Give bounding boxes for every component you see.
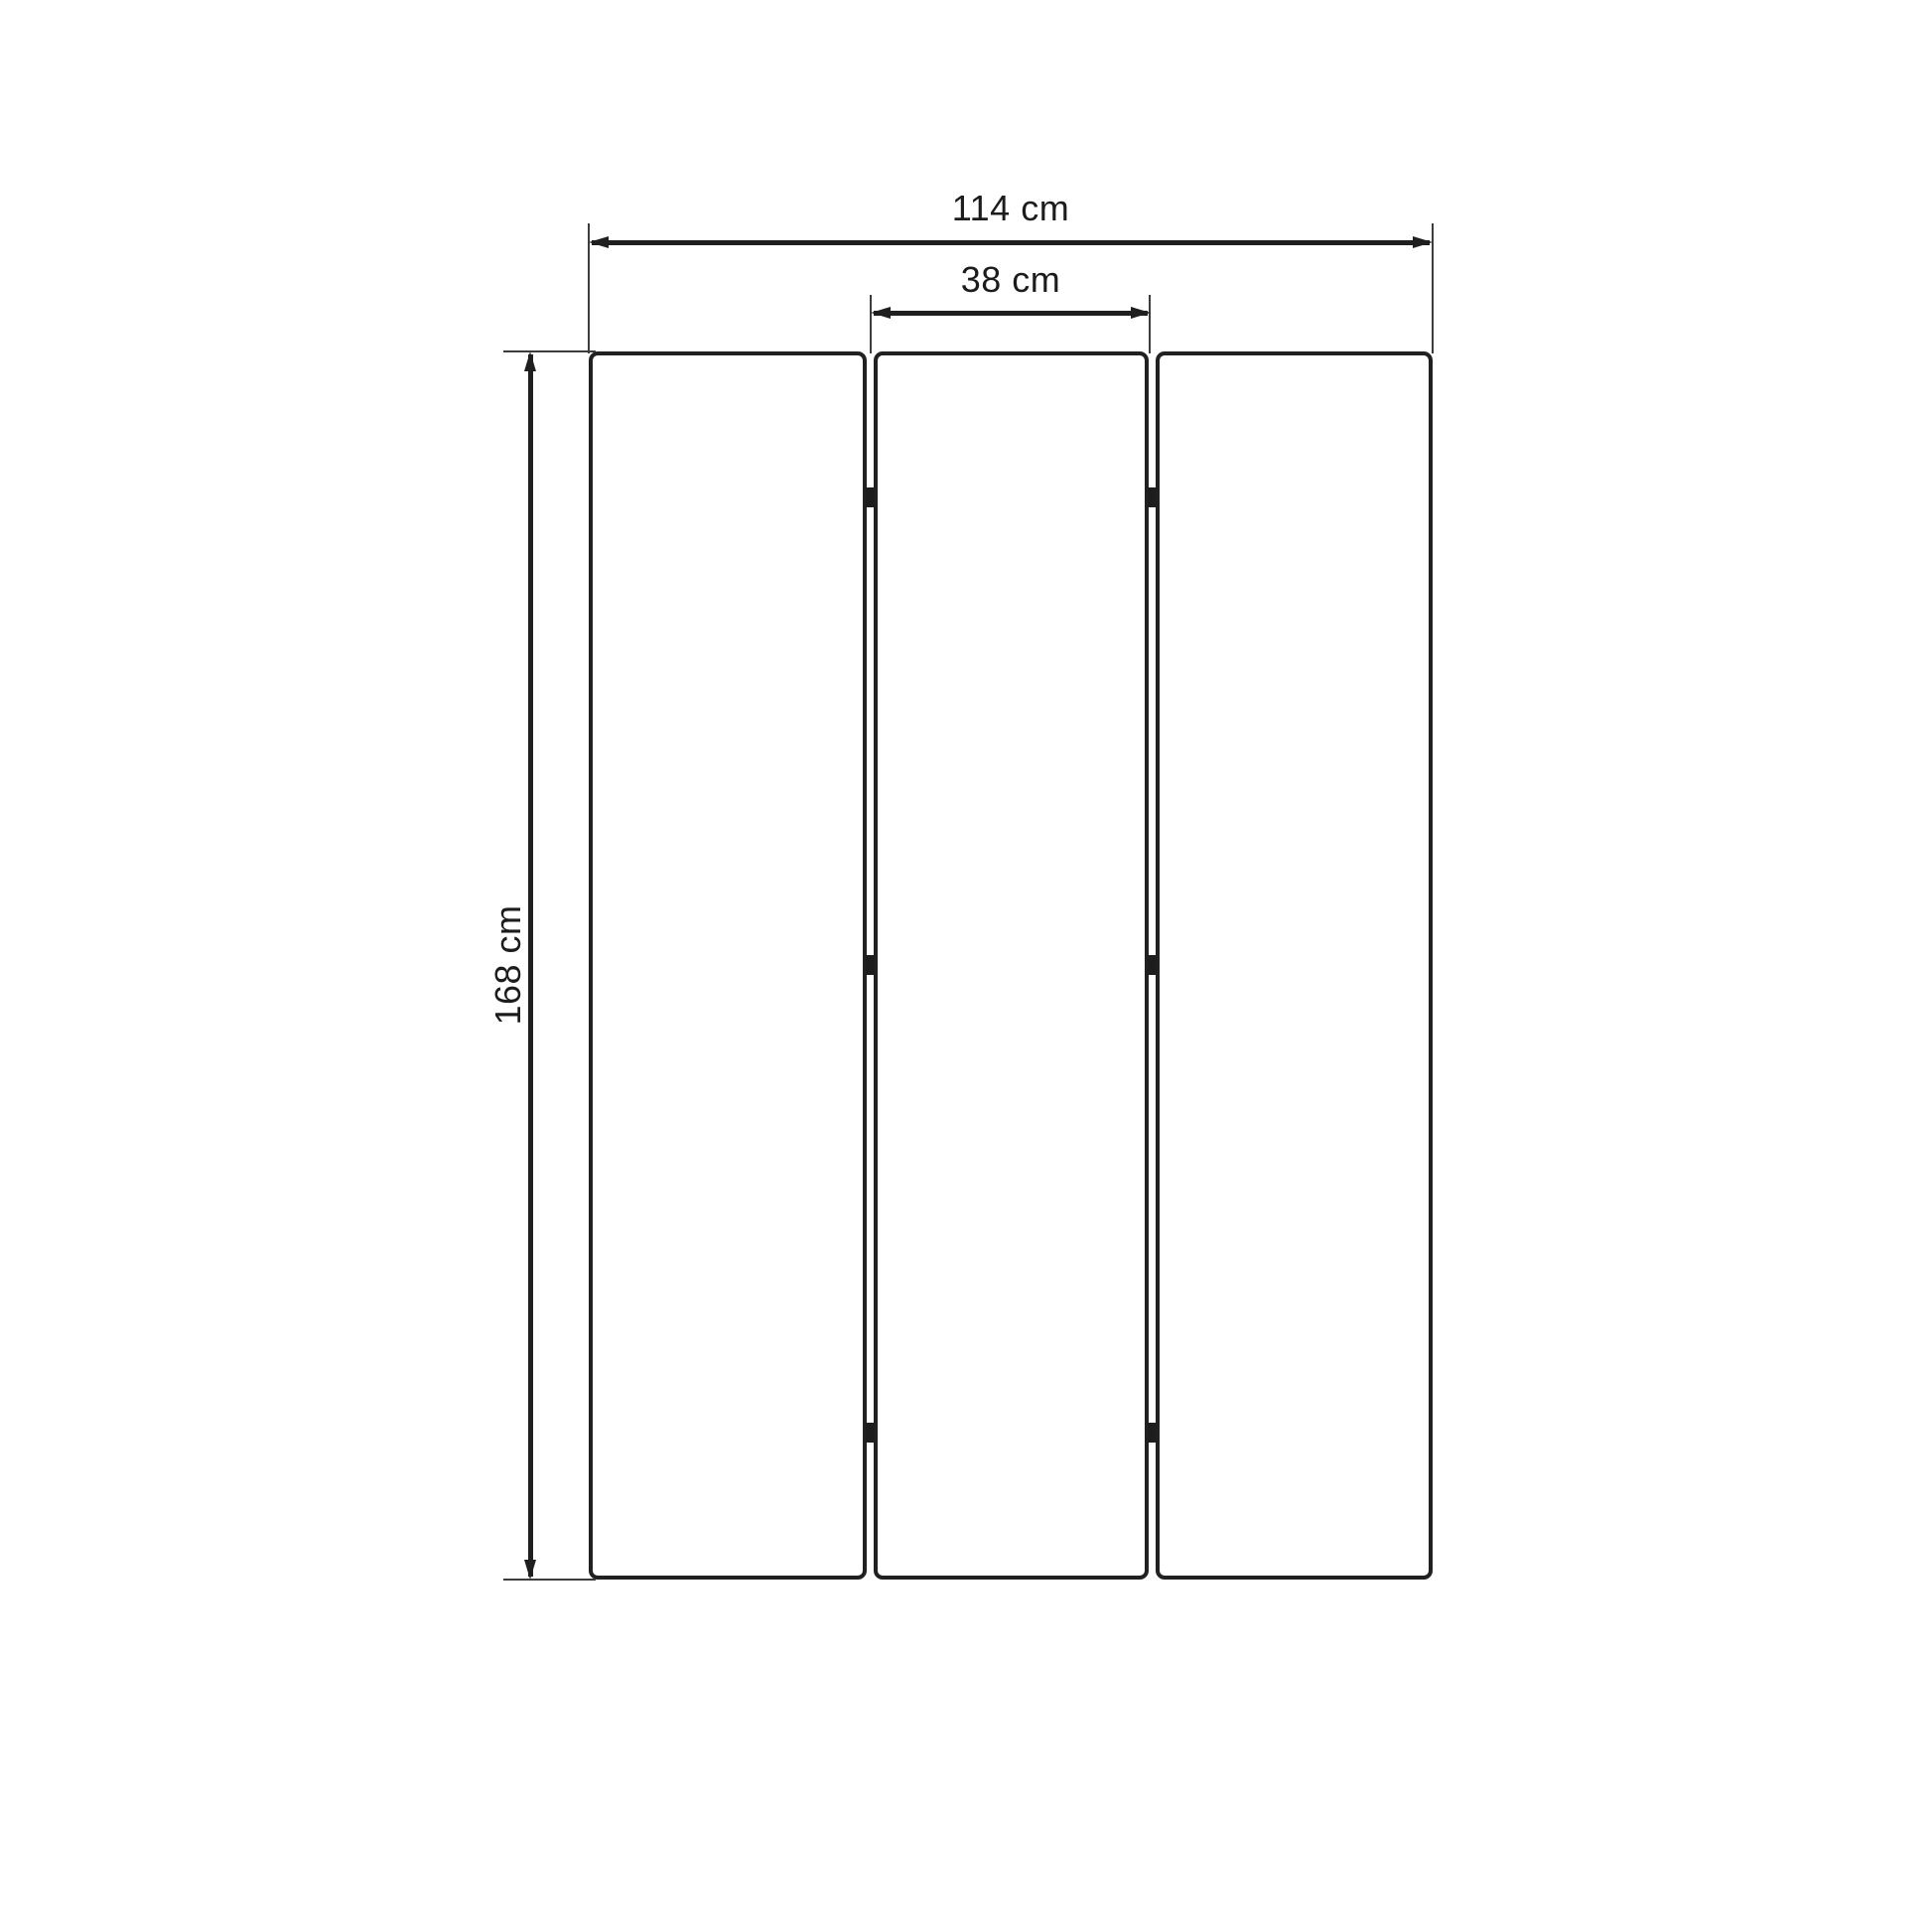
total-width-label: 114 cm bbox=[911, 191, 1110, 226]
extension-line-panel-width-right bbox=[1149, 295, 1151, 353]
hinge-icon bbox=[866, 955, 875, 975]
extension-line-panel-width-left bbox=[870, 295, 872, 353]
hinge-icon bbox=[866, 1423, 875, 1443]
height-label: 168 cm bbox=[490, 866, 526, 1064]
panel-right bbox=[1156, 351, 1433, 1580]
panel-left bbox=[589, 351, 867, 1580]
arrowhead-left-icon bbox=[589, 236, 609, 248]
panel-width-label: 38 cm bbox=[911, 262, 1110, 298]
height-dimension-line bbox=[528, 354, 533, 1577]
arrowhead-down-icon bbox=[524, 1560, 536, 1580]
hinge-icon bbox=[866, 487, 875, 507]
arrowhead-right-icon bbox=[1413, 236, 1433, 248]
extension-line-height-bottom bbox=[503, 1579, 596, 1581]
dimension-diagram: 114 cm 38 cm 168 cm bbox=[0, 0, 1932, 1932]
hinge-icon bbox=[1148, 487, 1157, 507]
arrowhead-left-icon bbox=[871, 307, 891, 319]
hinge-icon bbox=[1148, 1423, 1157, 1443]
arrowhead-right-icon bbox=[1131, 307, 1151, 319]
total-width-dimension-line bbox=[592, 240, 1430, 245]
hinge-icon bbox=[1148, 955, 1157, 975]
panel-center bbox=[874, 351, 1149, 1580]
arrowhead-up-icon bbox=[524, 351, 536, 371]
panel-width-dimension-line bbox=[874, 311, 1148, 316]
extension-line-height-top bbox=[503, 350, 596, 352]
